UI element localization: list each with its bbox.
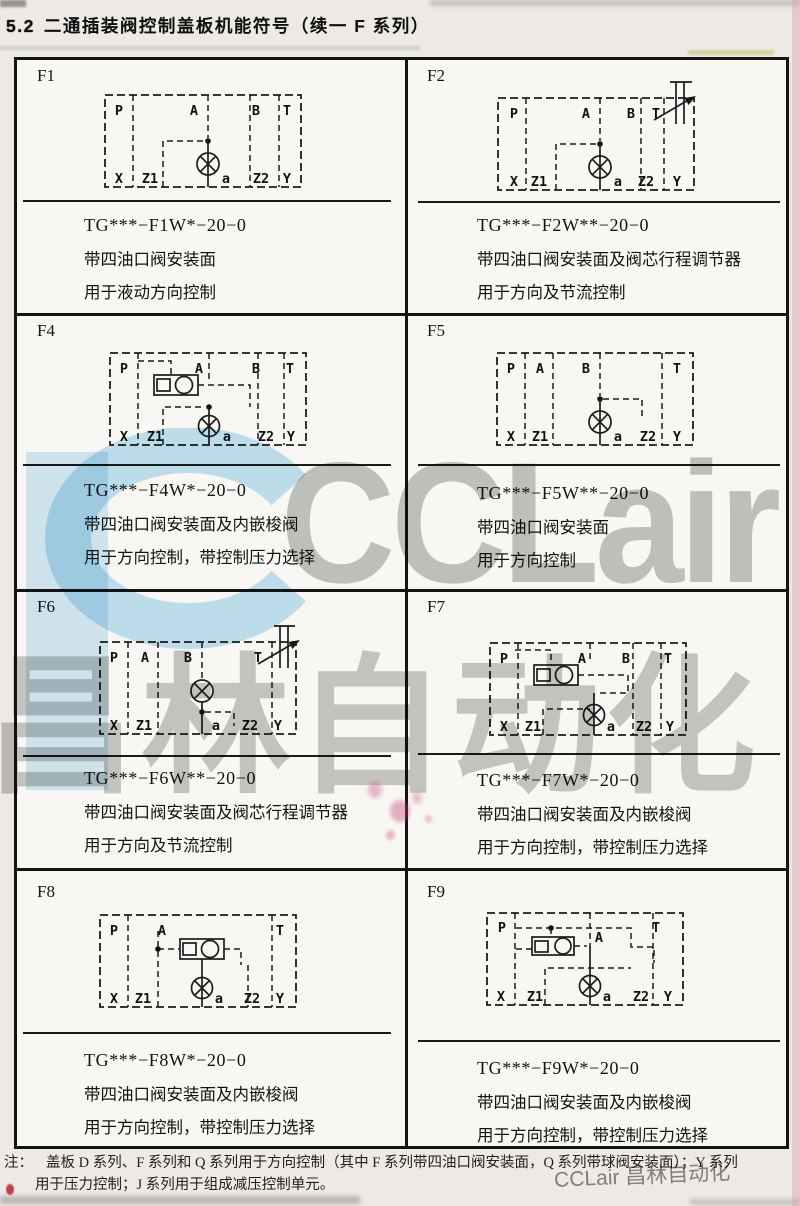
port-label: X [507,429,515,445]
cell-label: F2 [427,66,445,86]
scan-smudge [688,50,774,55]
port-label: Y [673,429,682,445]
port-label: Z1 [527,989,543,1005]
cell-label: F6 [37,597,55,617]
description-line: 用于液动方向控制 [84,279,246,303]
port-label: Z1 [525,719,541,735]
cell-label: F5 [427,321,445,341]
cell-text: TG***−F8W*−20−0 带四油口阀安装面及内嵌梭阀 用于方向控制，带控制… [84,1050,315,1138]
port-label: Z2 [258,429,274,445]
port-label: T [254,650,262,666]
port-label: a [215,991,223,1007]
footnote-text: 盖板 D 系列、F 系列和 Q 系列用于方向控制（其中 F 系列带四油口阀安装面… [46,1155,738,1171]
separator-line [23,1032,391,1034]
port-label: X [110,991,118,1007]
port-label: a [603,989,611,1005]
port-label: A [578,651,586,667]
footnote: 注：盖板 D 系列、F 系列和 Q 系列用于方向控制（其中 F 系列带四油口阀安… [4,1153,798,1197]
scan-smudge [690,1199,800,1205]
port-label: P [498,920,506,936]
cell-f9: F9 P A T X Z1 a [407,870,786,1146]
model-code: TG***−F9W*−20−0 [477,1058,708,1079]
page-title: 5.2二通插装阀控制盖板机能符号（续一 F 系列） [6,13,430,38]
shuttle-valve-symbol [532,937,574,955]
port-label: P [115,103,123,119]
description-line: 带四油口阀安装面及内嵌梭阀 [477,801,708,825]
description-line: 带四油口阀安装面及内嵌梭阀 [477,1089,708,1113]
shuttle-valve-symbol [180,939,224,959]
footnote-line-1: 注：盖板 D 系列、F 系列和 Q 系列用于方向控制（其中 F 系列带四油口阀安… [4,1153,798,1175]
f5-schematic: P A B T X Z1 a Z2 Y [485,341,715,461]
cell-label: F9 [427,882,445,902]
description-line: 用于方向控制，带控制压力选择 [84,1114,315,1138]
footnote-label: 注： [4,1155,33,1171]
port-label: P [110,650,118,666]
cell-text: TG***−F5W**−20−0 带四油口阀安装面 用于方向控制 [477,483,649,571]
pilot-valve-symbol [191,680,213,702]
port-label: X [120,429,128,445]
description-line: 带四油口阀安装面及内嵌梭阀 [84,1081,315,1105]
shuttle-valve-symbol [154,375,198,395]
port-label: X [115,171,123,187]
port-label: P [120,361,128,377]
cell-f5: F5 P A B T X Z1 a Z2 Y [407,315,786,589]
scan-smudge [0,1196,360,1204]
port-label: P [507,361,515,377]
port-label: a [614,174,622,190]
port-label: A [158,923,166,939]
f9-schematic: P A T X Z1 a Z2 Y [475,901,705,1021]
port-label: Z1 [135,991,151,1007]
port-label: A [190,103,198,119]
model-code: TG***−F5W**−20−0 [477,483,649,504]
cell-text: TG***−F1W*−20−0 带四油口阀安装面 用于液动方向控制 [84,215,246,303]
port-label: Y [664,989,673,1005]
port-label: P [510,106,518,122]
f4-schematic: P A B T X Z1 a Z2 Y [98,341,328,461]
description-line: 带四油口阀安装面及内嵌梭阀 [84,511,315,535]
port-label: A [595,930,603,946]
shuttle-valve-symbol [534,665,578,685]
cell-f2: F2 P A B T X Z1 [407,60,786,313]
port-label: T [652,920,660,936]
description-line: 带四油口阀安装面 [477,514,649,538]
section-number: 5.2 [6,16,35,36]
port-label: T [286,361,294,377]
cell-label: F4 [37,321,55,341]
footnote-line-2: 用于压力控制；J 系列用于组成减压控制单元。 [35,1175,798,1197]
symbol-table: F1 P A B T X Z1 a Z2 Y [14,57,789,1149]
port-label: P [500,651,508,667]
port-label: B [622,651,630,667]
port-label: a [223,429,231,445]
cell-text: TG***−F9W*−20−0 带四油口阀安装面及内嵌梭阀 用于方向控制，带控制… [477,1058,708,1146]
model-code: TG***−F8W*−20−0 [84,1050,315,1071]
port-label: a [607,719,615,735]
scan-smudge [0,0,26,7]
cell-text: TG***−F4W*−20−0 带四油口阀安装面及内嵌梭阀 用于方向控制，带控制… [84,480,315,568]
page-edge-streak [792,0,800,1206]
model-code: TG***−F6W**−20−0 [84,768,348,789]
separator-line [418,201,780,203]
cell-f8: F8 P A T X Z1 a [17,870,405,1146]
description-line: 用于方向控制，带控制压力选择 [477,834,708,858]
port-label: A [536,361,544,377]
port-label: P [110,923,118,939]
port-label: A [582,106,590,122]
port-label: T [652,106,660,122]
port-label: a [212,718,220,734]
port-label: B [252,361,260,377]
port-label: T [673,361,681,377]
cell-f6: F6 P A B T X Z1 [17,591,405,868]
f1-schematic: P A B T X Z1 a Z2 Y [93,83,323,203]
port-label: X [497,989,505,1005]
port-label: Y [283,171,292,187]
scanned-page: 5.2二通插装阀控制盖板机能符号（续一 F 系列） F1 P A B T [0,0,800,1206]
separator-line [418,753,780,755]
port-label: Y [287,429,296,445]
cell-label: F1 [37,66,55,86]
description-line: 用于方向控制 [477,547,649,571]
description-line: 带四油口阀安装面 [84,246,246,270]
description-line: 用于方向及节流控制 [84,832,348,856]
f2-schematic: P A B T X Z1 a Z2 Y [486,74,716,206]
port-label: Y [666,719,675,735]
cell-label: F8 [37,882,55,902]
cell-text: TG***−F6W**−20−0 带四油口阀安装面及阀芯行程调节器 用于方向及节… [84,768,348,856]
port-label: X [110,718,118,734]
description-line: 带四油口阀安装面及阀芯行程调节器 [84,799,348,823]
description-line: 带四油口阀安装面及阀芯行程调节器 [477,246,741,270]
f8-schematic: P A T X Z1 a Z2 Y [88,903,318,1023]
cell-text: TG***−F7W*−20−0 带四油口阀安装面及内嵌梭阀 用于方向控制，带控制… [477,770,708,858]
port-label: Y [276,991,285,1007]
model-code: TG***−F1W*−20−0 [84,215,246,236]
port-label: Z2 [242,718,258,734]
port-label: a [614,429,622,445]
port-label: T [283,103,291,119]
separator-line [418,1040,780,1042]
port-label: Z1 [532,429,548,445]
stroke-adjuster-symbol [654,82,696,124]
port-label: Z2 [640,429,656,445]
port-label: Z2 [253,171,269,187]
scan-smudge [430,0,800,6]
port-label: B [184,650,192,666]
f6-schematic: P A B T X Z1 a Z2 Y [88,616,318,748]
separator-line [23,755,391,757]
port-label: A [195,361,203,377]
separator-line [418,464,780,466]
model-code: TG***−F2W**−20−0 [477,215,741,236]
description-line: 用于方向控制，带控制压力选择 [477,1122,708,1146]
port-label: X [510,174,518,190]
cell-label: F7 [427,597,445,617]
port-label: Z2 [636,719,652,735]
port-label: Z2 [633,989,649,1005]
f7-schematic: P A B T X Z1 a Z2 Y [478,631,708,751]
port-label: Z1 [147,429,163,445]
cell-f1: F1 P A B T X Z1 a Z2 Y [17,60,405,313]
description-line: 用于方向控制，带控制压力选择 [84,544,315,568]
port-label: Y [673,174,682,190]
port-label: T [664,651,672,667]
separator-line [23,200,391,202]
port-label: T [276,923,284,939]
cell-text: TG***−F2W**−20−0 带四油口阀安装面及阀芯行程调节器 用于方向及节… [477,215,741,303]
port-label: B [252,103,260,119]
scan-smudge [0,46,420,50]
port-label: B [582,361,590,377]
cell-f4: F4 P A B T X Z1 [17,315,405,589]
port-label: Z1 [531,174,547,190]
description-line: 用于方向及节流控制 [477,279,741,303]
port-label: X [500,719,508,735]
model-code: TG***−F4W*−20−0 [84,480,315,501]
port-label: Z2 [244,991,260,1007]
stroke-adjuster-symbol [258,626,300,668]
separator-line [23,464,391,466]
port-label: Z2 [638,174,654,190]
section-title-text: 二通插装阀控制盖板机能符号（续一 F 系列） [44,16,430,36]
port-label: Z1 [136,718,152,734]
cell-f7: F7 P A B T X Z1 a [407,591,786,868]
port-label: a [222,171,230,187]
port-label: Z1 [142,171,158,187]
port-label: B [627,106,635,122]
port-label: A [141,650,149,666]
port-label: Y [274,718,283,734]
model-code: TG***−F7W*−20−0 [477,770,708,791]
